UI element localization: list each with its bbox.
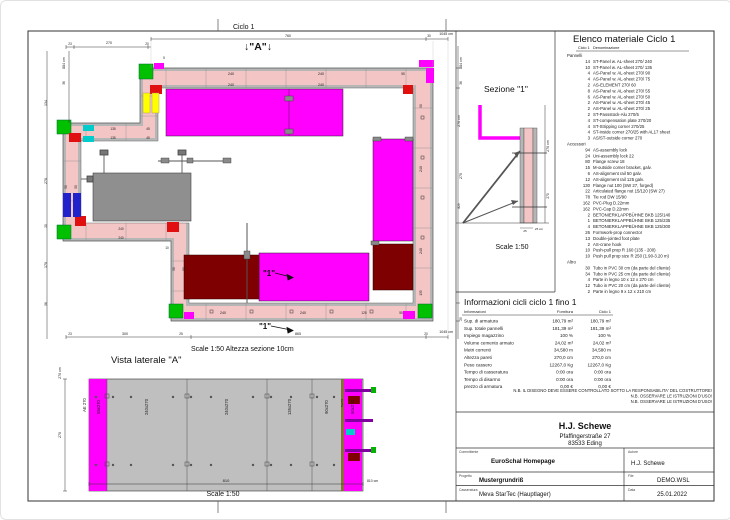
material-item-qty: 10 (585, 248, 590, 253)
info-row-fornitura: 0:00 ora (556, 370, 573, 375)
material-item-desc: ST-Stripping corner 270/25 (593, 124, 645, 129)
fastener-dot (333, 464, 335, 466)
material-item-desc: Tubo in PVC 20 cm (da parte del cliente) (593, 283, 671, 288)
fastener-dot (210, 464, 212, 466)
info-row-label: Sup. di armatura (464, 319, 498, 324)
autore-value: H.J. Schewe (631, 461, 665, 467)
wall-section (524, 128, 533, 223)
info-row-ciclo: 181,39 m² (590, 326, 611, 331)
company-address-1: Pfaffingerstraße 27 (560, 434, 612, 440)
dim-label: 50 (182, 267, 186, 271)
info-row-label: prezzo di armatura (464, 384, 503, 389)
material-item-qty: 12 (585, 177, 590, 182)
dim-label: 270 (44, 178, 48, 184)
material-section-title: Pannelli (567, 53, 582, 58)
company-address-2: 83533 Eding (568, 441, 602, 447)
fastener-dot (270, 396, 272, 398)
plan-scale-note: Scale 1:50 Altezza sezione 10cm (191, 346, 294, 353)
dim-label: 45 (146, 127, 150, 131)
dim-label: AE 270 (82, 397, 87, 411)
filler-cyan (83, 136, 94, 142)
material-item-desc: AS-Panel w. AL-sheet 270/ 55 (593, 88, 651, 93)
material-item-desc: AS-Panel w. AL-sheet 270/ 25 (593, 106, 651, 111)
fastener-dot (333, 396, 335, 398)
dim-label: 884 cm (459, 57, 463, 69)
material-item-desc: ST-Panel w. AL-sheet 270/ 240 (593, 59, 653, 64)
info-row-fornitura: 100 % (560, 333, 573, 338)
dim-label: 50 (64, 185, 68, 189)
cad-application-canvas: Ciclo 1 ↓"A"↓ (0, 0, 730, 520)
material-item-desc: ST-compensation plate 270/20 (593, 118, 652, 123)
material-item-desc: Flange screw 18 (593, 159, 625, 164)
fastener-dot (95, 464, 97, 466)
fastener-dot (316, 464, 318, 466)
dim-label: 50 (172, 267, 176, 271)
fastener-dot (190, 396, 192, 398)
material-item-qty: 10 (585, 254, 590, 259)
dim-label: 240 (220, 311, 226, 315)
material-item-desc: BETONIERKLAPPBÜHNE BKB 125/300 (593, 224, 671, 229)
dim-label: 25 (179, 332, 183, 336)
dim-label: 45 (146, 136, 150, 140)
material-section-title: Accessori (567, 142, 586, 147)
info-row-fornitura: 180,79 m² (552, 319, 573, 324)
dim-label: 240 (419, 166, 423, 172)
material-item-desc: Uni-assembly lock 22 (593, 153, 634, 158)
working-platform (93, 173, 191, 221)
corner-magenta (419, 60, 434, 67)
material-item-desc: Double-jointed foot plate (593, 236, 640, 241)
dim-label: 865 (295, 332, 301, 336)
dim-label: 56 (44, 302, 48, 306)
dim-label: 23 (68, 332, 72, 336)
fastener-dot (252, 464, 254, 466)
dim-label: 170 (44, 262, 48, 268)
info-row-ciclo: 180,79 m² (590, 319, 611, 324)
material-item-desc: Push-pull prop R 160 (135 - 200) (593, 248, 656, 253)
info-row-label: Volume cemento armato (464, 340, 514, 345)
company-name: H.J. Schewe (559, 421, 612, 431)
fastener-dot (112, 396, 114, 398)
material-item-desc: Flange nut 100 (SW 27, forged) (593, 183, 654, 188)
material-item-desc: Articulated flange nut 15/120 (SW 27) (593, 189, 665, 194)
dim-label: 23 (68, 42, 72, 46)
file-label: File (628, 474, 634, 478)
material-item-qty: 34 (585, 271, 590, 276)
info-row-label: Altezza pareti (464, 355, 492, 360)
formwork-panel-top (166, 89, 343, 136)
nb-note: N.B. OSSERVARE LE ISTRUZIONI D'USO! (631, 399, 712, 404)
outside-corner-green (57, 225, 71, 239)
dim-label: 134 (44, 100, 48, 106)
material-item-desc: AS-Panel w. AL-sheet 270/ 50 (593, 94, 651, 99)
formwork-face (520, 128, 524, 223)
material-item-qty: 24 (585, 153, 590, 158)
material-item-desc: BETONIERKLAPPBÜHNE BKB 125/140 (593, 212, 671, 217)
info-row-ciclo: 100 % (598, 333, 611, 338)
dim-label: 135 (419, 290, 423, 296)
info-col-header: Ciclo 1 (599, 309, 612, 314)
material-item-desc: M-outside corner bracket, galv. (593, 165, 652, 170)
material-item-qty: 26 (585, 230, 590, 235)
info-title: Informazioni cicli ciclo 1 fino 1 (464, 297, 577, 307)
material-item-desc: Parte in legno 9 x 12 x 210 cm (593, 289, 651, 294)
material-item-qty: 162 (583, 206, 591, 211)
material-item-desc: ST-Panel w. AL-sheet 270/ 135 (593, 65, 653, 70)
data-value: 25.01.2022 (657, 492, 688, 498)
filler-cyan (83, 125, 94, 131)
info-row-fornitura: 34,580 m (554, 348, 573, 353)
dim-label: 270 (546, 193, 550, 199)
info-row-label: Impiego magazzino (464, 333, 504, 338)
material-item-desc: Formwork-prop connector (593, 230, 643, 235)
dim-label: 55 (401, 72, 405, 76)
dim-label: 1045 cm (439, 32, 453, 36)
dim-label: 240 (228, 83, 234, 87)
material-item-desc: Parte in legno 10 x 12 x 270 cm (593, 277, 654, 282)
fastener-dot (316, 396, 318, 398)
fastener-dot (112, 464, 114, 466)
waler-purple (345, 449, 373, 452)
info-row-ciclo: 0:00 ora (594, 377, 611, 382)
dim-label: 240x270 (144, 398, 149, 415)
material-item-qty: 94 (585, 147, 590, 152)
fastener-dot (172, 396, 174, 398)
material-item-qty: 12 (585, 283, 590, 288)
material-item-qty: 13 (585, 236, 590, 241)
material-item-desc: AS-ELEMENT 270/ 60 (593, 83, 637, 88)
dim-label: 90 (419, 104, 423, 108)
dim-label: 25 (459, 317, 463, 321)
fastener-dot (130, 396, 132, 398)
material-item-qty: 78 (585, 195, 590, 200)
info-row-ciclo: 12267,0 Kg (587, 362, 611, 367)
dim-label: 25 cm (535, 227, 544, 231)
material-item-desc: AS-Panel w. AL-sheet 270/ 90 (593, 71, 651, 76)
outside-corner-green (418, 304, 432, 318)
material-item-qty: 130 (583, 183, 591, 188)
dim-label: 20 (44, 224, 48, 228)
dim-label: 240 (300, 311, 306, 315)
vista-filler-strip (341, 379, 344, 491)
material-item-desc: Tubo in PVC 25 cm (da parte del cliente) (593, 271, 671, 276)
dim-label: 884 cm (62, 57, 66, 69)
waler-purple (345, 419, 373, 422)
nb-note: N.B. IL DISEGNO DEVE ESSERE CONTROLLATO … (513, 388, 712, 393)
inside-corner-red (150, 85, 162, 94)
info-row-ciclo: 34,580 m (592, 348, 611, 353)
platform-dark-red-left (184, 255, 259, 299)
casseratura-label: Casseratura (459, 488, 478, 492)
dim-label: 760 (285, 34, 291, 38)
filler-yellow (143, 93, 150, 113)
corner-magenta (184, 312, 194, 319)
material-item-desc: ST-inside corner 270/25 with AL17 sheet (593, 130, 671, 135)
info-row-ciclo: 24,02 m³ (593, 340, 612, 345)
fastener-dot (95, 396, 97, 398)
fastener-dot (290, 396, 292, 398)
material-item-desc: AS/ST-outside corner 270 (593, 136, 643, 141)
committente-label: Committente (459, 450, 478, 454)
fastener-dot (190, 464, 192, 466)
fastener-dot (270, 464, 272, 466)
material-item-desc: Tubo in PVC 30 cm (da parte del cliente) (593, 265, 671, 270)
dim-label: 90x270 (324, 399, 329, 413)
corner-magenta (154, 63, 164, 69)
dim-label: 50x270 (350, 399, 355, 413)
dim-label: 135x270 (287, 398, 292, 415)
section-marker-a: ↓"A"↓ (244, 41, 272, 53)
material-item-qty: 80 (585, 159, 590, 164)
dim-label: 240 (118, 236, 124, 240)
dim-label: 270 cm (546, 140, 550, 152)
file-value: DEMO.WSL (657, 478, 690, 484)
panel-blue (73, 193, 81, 217)
info-row-ciclo: 270,0 cm (592, 355, 611, 360)
dim-label: 1045 cm (439, 330, 453, 334)
fastener-dot (252, 396, 254, 398)
cad-sheet: Ciclo 1 ↓"A"↓ (1, 1, 730, 519)
outside-corner-green (169, 304, 183, 318)
nb-note: N.B. OSSERVARE LE ISTRUZIONI D'USO! (631, 394, 712, 399)
casseratura-value: Meva StarTec (Hauptlager) (479, 492, 551, 498)
filler-yellow (152, 93, 159, 113)
material-item-desc: AS-crane hook (593, 242, 622, 247)
dim-label: 300 (122, 332, 128, 336)
dim-label: 30 (427, 34, 431, 38)
inside-corner-red (69, 133, 81, 142)
dim-label: 240 (118, 227, 124, 231)
dim-label: 55 (399, 311, 403, 315)
info-row-fornitura: 12267,0 Kg (549, 362, 573, 367)
material-item-qty: 30 (585, 265, 590, 270)
tip-green (371, 447, 376, 453)
vista-panels-body (89, 379, 363, 491)
dim-label: 36 (459, 81, 463, 85)
material-item-desc: AS-assembly lock (593, 147, 628, 152)
waler-purple (345, 389, 373, 392)
section-marker-1: "1" (259, 322, 271, 331)
dim-label: 810 cm (367, 479, 378, 483)
vista-title: Vista laterale "A" (111, 355, 181, 366)
dim-label: 125 (361, 311, 367, 315)
info-row-label: Metri correnti (464, 348, 491, 353)
info-row-fornitura: 270,0 cm (554, 355, 573, 360)
dim-label: 270 cm (457, 115, 461, 127)
dim-label: 270 (58, 432, 62, 438)
sezione-scale: Scale 1:50 (495, 244, 528, 251)
section-marker-1: "1" (263, 269, 275, 278)
dim-label: 10 (165, 246, 169, 250)
dim-label: 55x270 (96, 399, 101, 413)
dim-label: 240 (318, 83, 324, 87)
material-item-qty: 22 (585, 189, 590, 194)
info-row-label: Peso cassero (464, 362, 492, 367)
inside-corner-red (403, 85, 413, 94)
clamp-cyan (346, 429, 355, 435)
material-item-desc: Tie rod DW 15/90 (593, 195, 627, 200)
platform-dark-red-right (373, 244, 413, 290)
panel-blue (63, 193, 71, 217)
dim-label: 240 (228, 72, 234, 76)
dim-label: 829 (457, 203, 461, 209)
progetto-label: Progetto (459, 474, 472, 478)
material-item-desc: AS-alignment rail 125 galv. (593, 177, 644, 182)
info-row-fornitura: 0:00 ora (556, 377, 573, 382)
material-list-title: Elenco materiale Ciclo 1 (573, 34, 675, 45)
material-item-qty: 10 (585, 65, 590, 70)
dim-label: 50 (74, 185, 78, 189)
progetto-value: Mustergrundriß (479, 478, 524, 484)
formwork-face (533, 128, 537, 223)
dim-label: 5 (163, 56, 165, 60)
info-row-fornitura: 181,39 m² (552, 326, 573, 331)
material-item-desc: BETONIERKLAPPBÜHNE BKB 125/235 (593, 218, 671, 223)
material-item-qty: 15 (585, 165, 590, 170)
bracket-dark-red (348, 453, 360, 461)
inside-corner-red (167, 222, 179, 232)
material-item-desc: PVC-Plug D.22mm (593, 201, 630, 206)
info-col-header: Informazioni (464, 309, 486, 314)
dim-label: 20 (424, 332, 428, 336)
material-item-desc: AS-alignment rail 50 galv. (593, 171, 642, 176)
material-item-desc: AS-Panel w. AL-sheet 270/ 75 (593, 77, 651, 82)
fastener-dot (290, 464, 292, 466)
vista-end-panel-magenta (89, 379, 107, 491)
dim-label: 270 cm (58, 367, 62, 379)
data-label: Data (628, 488, 635, 492)
dim-label: 20 (145, 42, 149, 46)
formwork-panel-right (373, 139, 413, 241)
info-row-label: Tempo di disarmo (464, 377, 501, 382)
formwork-panel-bottom (259, 253, 369, 301)
committente-value: EuroSchal Homepage (491, 458, 556, 465)
info-row-ciclo: 0:00 ora (594, 370, 611, 375)
info-row-fornitura: 24,02 m³ (555, 340, 574, 345)
corner-magenta (403, 311, 415, 319)
corner-magenta (426, 68, 434, 83)
dim-label: 270 (106, 41, 112, 45)
material-col-header-ciclo: Ciclo 1 (578, 46, 590, 50)
dim-label: 135 (110, 127, 116, 131)
dim-label: 240x270 (224, 398, 229, 415)
plan-title: Ciclo 1 (233, 24, 255, 31)
material-item-desc: AS-Panel w. AL-sheet 270/ 45 (593, 100, 651, 105)
dim-label: 36 (62, 81, 66, 85)
autore-label: Autore (628, 450, 638, 454)
info-col-header: Fornitura (557, 309, 574, 314)
dim-label: 240 (419, 248, 423, 254)
fastener-dot (130, 464, 132, 466)
dim-label: 270 (459, 173, 463, 179)
fastener-dot (172, 464, 174, 466)
material-col-header-denominazione: Denominazione (593, 46, 619, 50)
material-item-desc: ST-Passstück-Alu 270/5 (593, 112, 639, 117)
dim-label: 25 (523, 229, 527, 233)
tip-green (371, 387, 376, 393)
material-item-qty: 162 (583, 201, 591, 206)
material-item-qty: 14 (585, 59, 590, 64)
dim-label: 135 (110, 136, 116, 140)
dim-label: 810 (223, 478, 230, 483)
material-section-title: Altro (567, 260, 576, 265)
sezione-title: Sezione "1" (484, 84, 528, 94)
info-row-label: Tempo di casseratura (464, 370, 508, 375)
material-item-desc: Push pull prop size R 250 (1.90-3.20 m) (593, 254, 670, 259)
material-item-desc: PVC-Cap D.22mm (593, 206, 629, 211)
vista-scale: Scale 1:50 (206, 491, 239, 498)
info-row-label: Sup. totale pannelli (464, 326, 503, 331)
dim-label: 5x270 (340, 399, 344, 408)
inside-corner-red (75, 216, 86, 226)
fastener-dot (210, 396, 212, 398)
dim-label: 240 (318, 72, 324, 76)
